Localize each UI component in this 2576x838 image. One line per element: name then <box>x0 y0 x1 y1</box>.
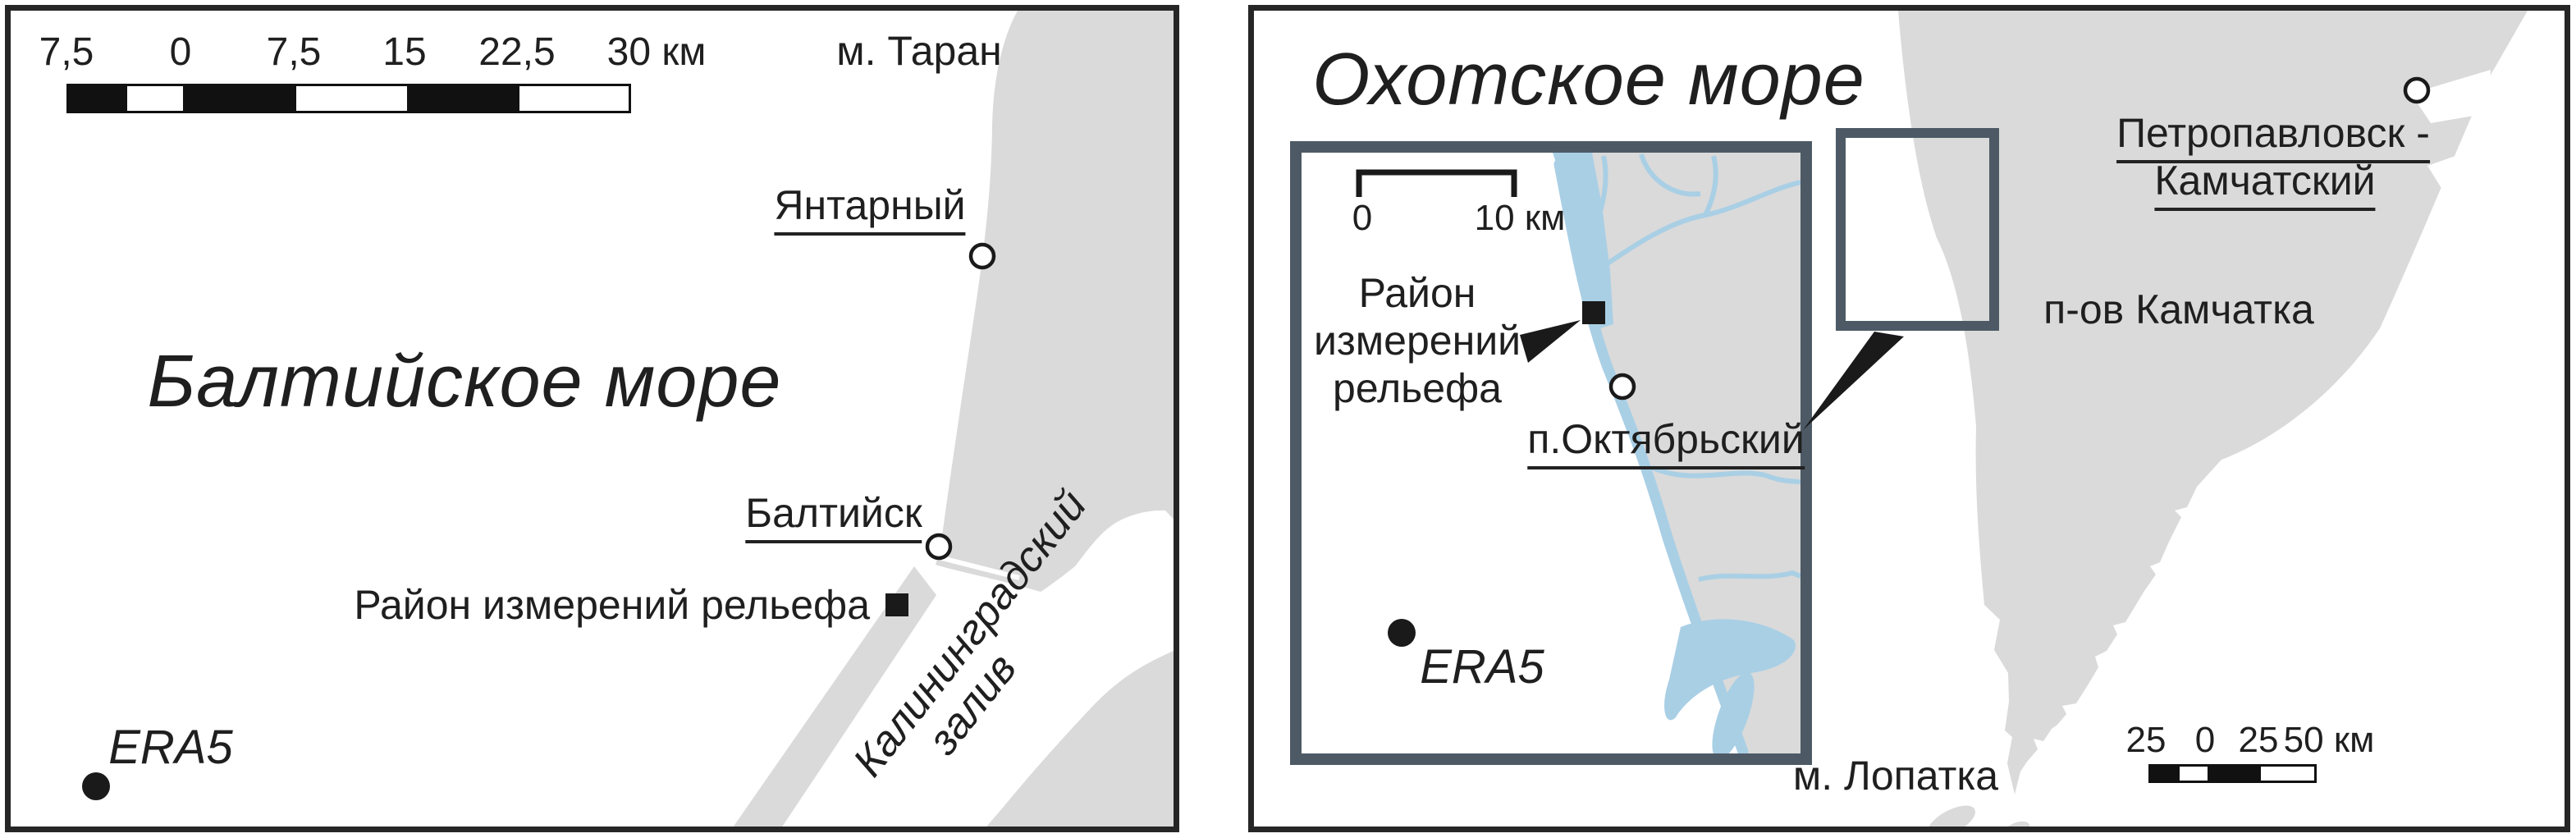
two-panel-location-map-figure: { "colors": { "land": "#dadada", "water"… <box>0 0 2576 838</box>
scalebar-segment <box>2180 767 2208 781</box>
scalebar-segment <box>69 86 127 111</box>
baltic-scalebar <box>66 84 631 113</box>
scalebar-segment <box>519 86 629 111</box>
okhotsk-era5-label: ERA5 <box>1420 643 1544 691</box>
okhotsk-scalebar <box>2148 764 2317 783</box>
petropavlovsk-label-line1: Петропавловск - <box>2116 112 2430 153</box>
oktyabrsky-label-text: п.Октябрьский <box>1527 416 1805 469</box>
oktyabrsky-label: п.Октябрьский <box>1527 419 1805 460</box>
inset-survey-line2: измерений <box>1314 317 1521 364</box>
yantarny-label: Янтарный <box>774 185 965 226</box>
inset-scale-label-10: 10 км <box>1475 200 1566 236</box>
inset-survey-line1: Район <box>1314 269 1521 317</box>
scalebar-segment <box>407 86 519 111</box>
yantarny-label-text: Янтарный <box>774 182 965 236</box>
scalebar-segment <box>2151 767 2180 781</box>
baltic-sea-title: Балтийское море <box>148 345 782 419</box>
petropavlovsk-label-line2: Камчатский <box>2154 160 2375 201</box>
okhotsk-sea-title: Охотское море <box>1312 43 1865 117</box>
okhotsk-scale-tick-label: 0 <box>2195 722 2215 758</box>
baltic-scale-tick-label: 22,5 <box>478 33 555 72</box>
cape-lopatka-label: м. Лопатка <box>1793 755 1998 796</box>
baltic-scale-tick-label: 15 <box>382 33 426 72</box>
inset-survey-area-label: Район измерений рельефа <box>1314 269 1521 412</box>
cape-taran-label: м. Таран <box>836 30 1002 71</box>
petropavlovsk-line2-text: Камчатский <box>2154 158 2375 211</box>
inset-survey-line3: рельефа <box>1314 364 1521 412</box>
baltiysk-label: Балтийск <box>745 492 922 533</box>
inset-scale-label-0: 0 <box>1352 200 1372 236</box>
scalebar-segment <box>183 86 296 111</box>
scalebar-segment <box>2261 767 2314 781</box>
okhotsk-scale-tick-label: 50 км <box>2284 722 2375 758</box>
okhotsk-scale-tick-label: 25 <box>2239 722 2279 758</box>
baltic-era5-label: ERA5 <box>108 724 233 772</box>
baltic-scale-tick-label: 7,5 <box>267 33 322 72</box>
kamchatka-peninsula-label: п-ов Камчатка <box>2043 289 2314 330</box>
baltic-scale-tick-label: 7,5 <box>39 33 94 72</box>
scalebar-segment <box>2208 767 2261 781</box>
baltic-scale-tick-label: 30 км <box>607 33 707 72</box>
petropavlovsk-line1-text: Петропавловск - <box>2116 110 2430 163</box>
okhotsk-scale-tick-label: 25 <box>2126 722 2166 758</box>
scalebar-segment <box>296 86 407 111</box>
baltiysk-label-text: Балтийск <box>745 490 922 543</box>
baltic-scale-tick-label: 0 <box>170 33 192 72</box>
baltic-survey-area-label: Район измерений рельефа <box>354 584 870 625</box>
scalebar-segment <box>127 86 183 111</box>
